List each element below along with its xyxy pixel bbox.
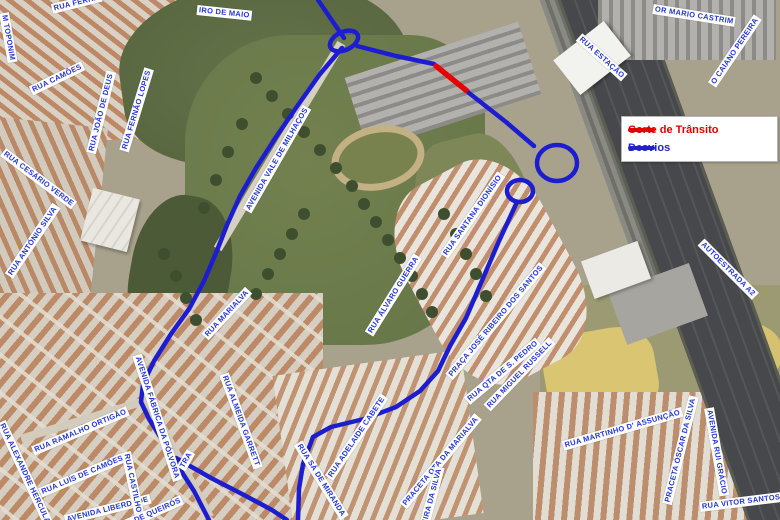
route-ellipse-car-park-loop [327, 27, 362, 56]
detour-map-screenshot: M TOPONIMRUA FERRAIRO DE MAIORUA CAMÕESR… [0, 0, 780, 520]
route-segment-closure [436, 66, 467, 91]
route-overlay [0, 0, 780, 520]
legend-box: Corte de Trânsito Desvios [621, 116, 778, 162]
legend-row-detour: Desvios [628, 140, 773, 156]
route-segment-detour [469, 93, 534, 146]
route-segment-detour [357, 46, 434, 64]
legend-closure-label: Corte de Trânsito [628, 123, 718, 137]
legend-detour-label: Desvios [628, 141, 670, 155]
legend-row-closure: Corte de Trânsito [628, 122, 773, 138]
route-ellipse-roundabout-large [537, 145, 577, 181]
route-ellipse-roundabout-small [507, 180, 533, 202]
